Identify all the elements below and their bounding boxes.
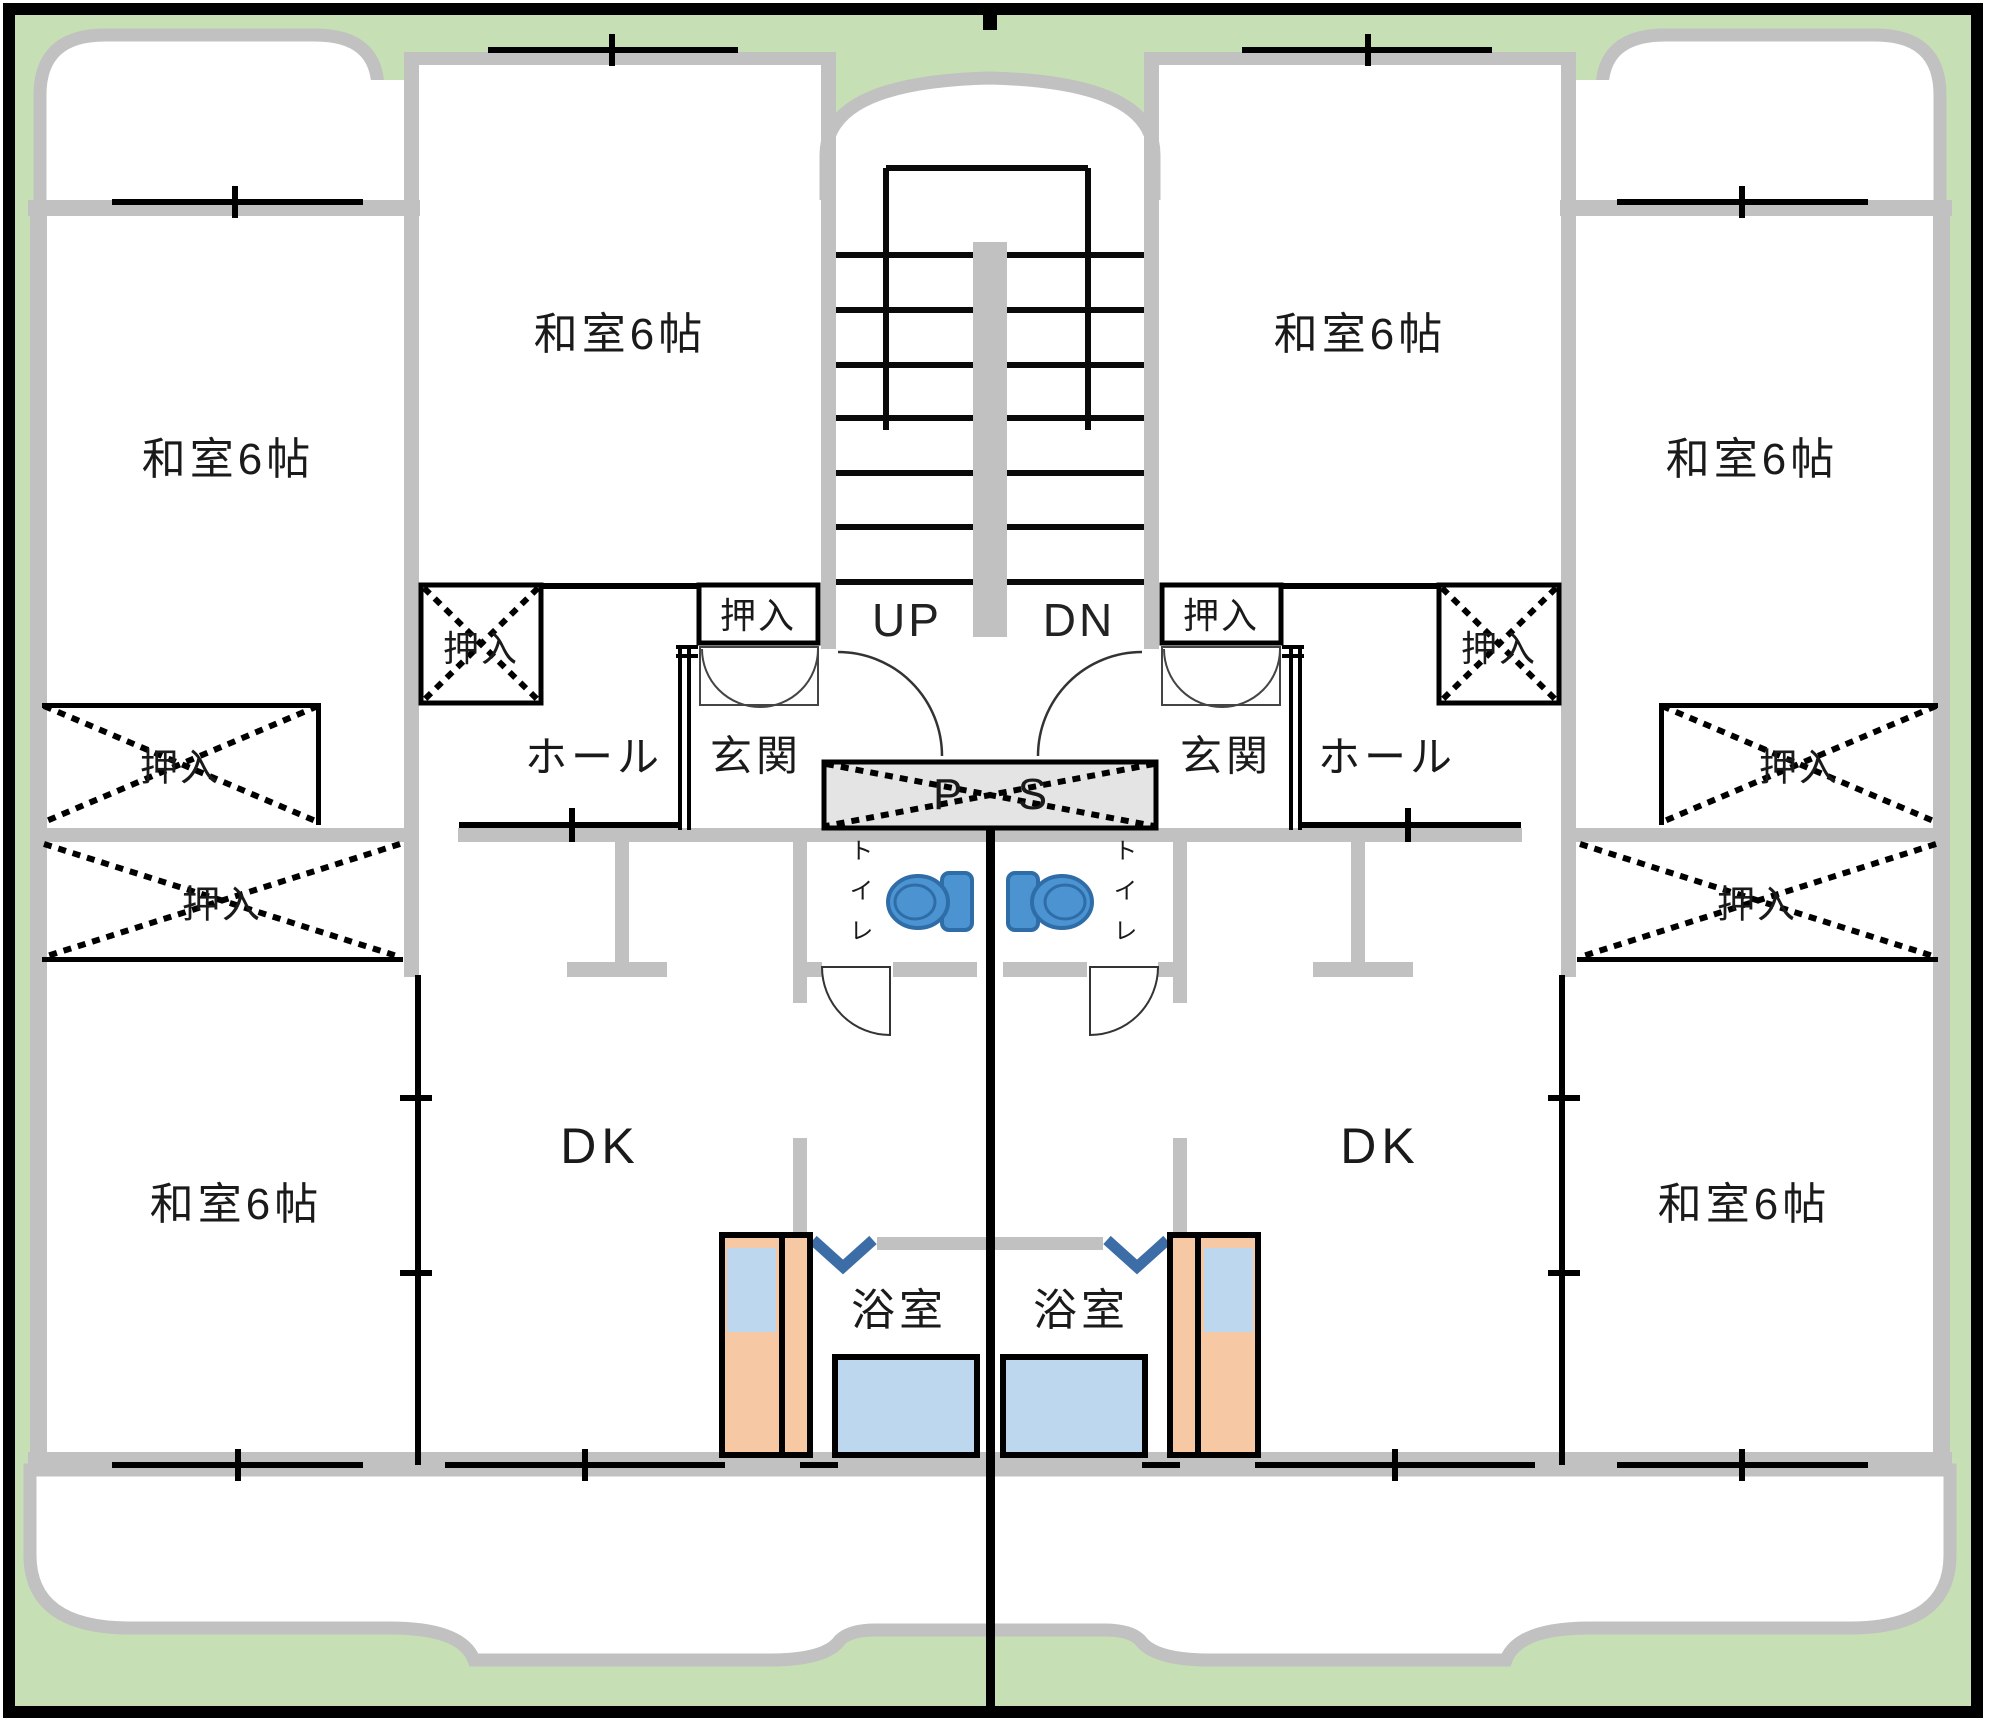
kitchen-counter-left	[722, 1235, 810, 1455]
floor-plan: 和室6帖 和室6帖 和室6帖 和室6帖 和室6帖 和室6帖 押入 押入 押入 押…	[0, 0, 2000, 1735]
closet-box-right-entrance	[1162, 585, 1281, 643]
stairwell-arch	[826, 78, 1154, 215]
floor-plan-drawing	[0, 0, 2000, 1735]
toilet-icon-left	[888, 873, 972, 930]
top-center-tick	[983, 14, 997, 30]
kitchen-counter-right	[1170, 1235, 1258, 1455]
balcony-top-left	[40, 35, 378, 215]
balcony-top-right	[1602, 35, 1940, 215]
closet-box-left-entrance	[699, 585, 818, 643]
unit-divider-line	[986, 828, 995, 1718]
toilet-icon-right	[1008, 873, 1092, 930]
bathtub-right	[1003, 1357, 1145, 1455]
bathtub-left	[835, 1357, 977, 1455]
